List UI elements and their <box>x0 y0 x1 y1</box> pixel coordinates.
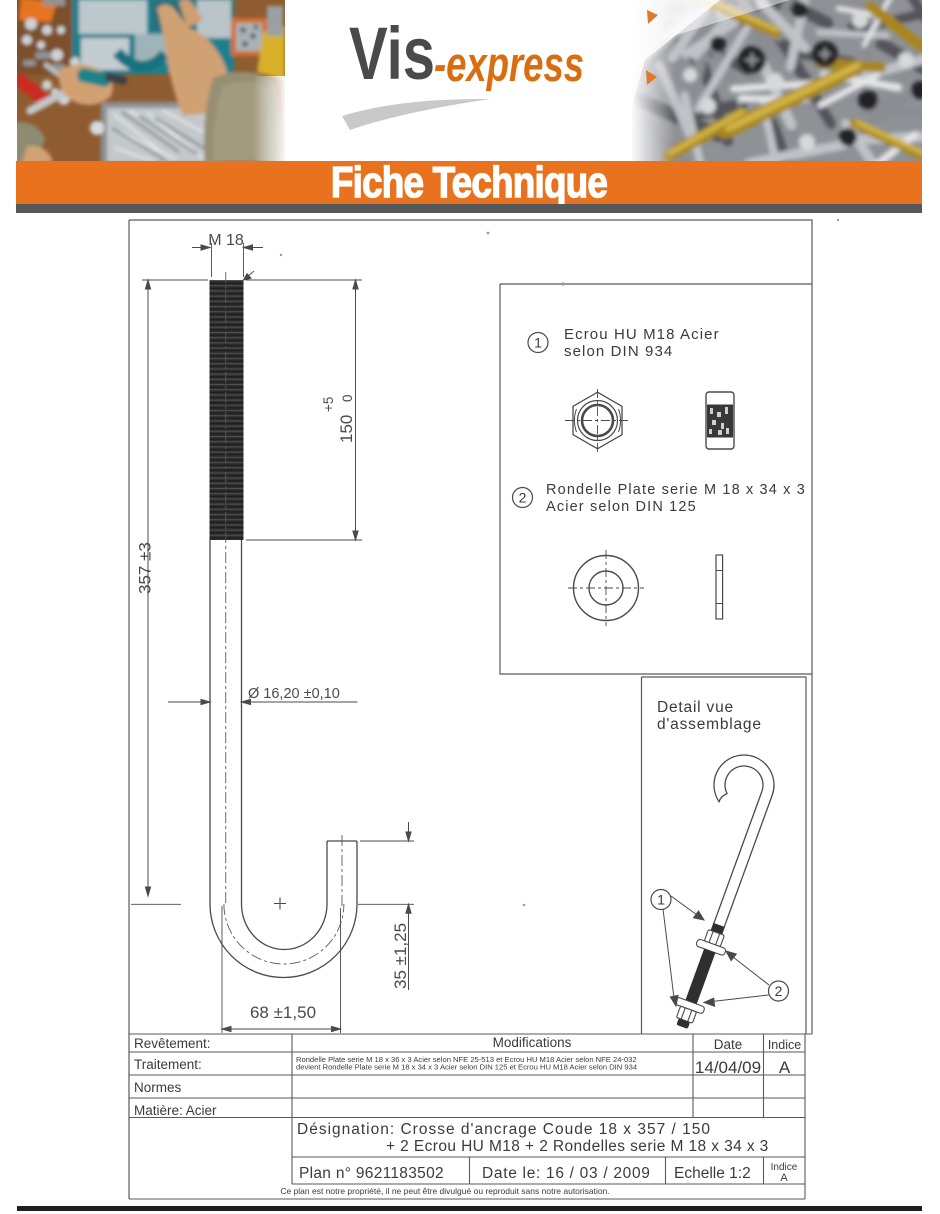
svg-text:M 18: M 18 <box>208 232 244 249</box>
svg-text:1: 1 <box>657 892 665 908</box>
svg-text:2: 2 <box>775 983 783 999</box>
svg-text:A: A <box>780 1172 788 1184</box>
svg-text:14/04/09: 14/04/09 <box>695 1058 761 1077</box>
svg-text:2: 2 <box>519 490 527 506</box>
svg-text:Désignation: Crosse d'ancrage: Désignation: Crosse d'ancrage Coude 18 x… <box>297 1121 711 1138</box>
svg-text:Rondelle Plate serie M 18 x 3: Rondelle Plate serie M 18 x 34 x 3 <box>546 482 806 498</box>
svg-text:Date: Date <box>714 1037 743 1052</box>
svg-text:Ce plan est notre propriété, i: Ce plan est notre propriété, il ne peut … <box>280 1186 609 1196</box>
svg-text:Detail vue: Detail vue <box>657 699 734 716</box>
svg-text:Echelle 1:2: Echelle 1:2 <box>674 1165 751 1182</box>
svg-text:Matière: Acier: Matière: Acier <box>134 1103 217 1118</box>
svg-text:Normes: Normes <box>134 1080 182 1095</box>
svg-text:A: A <box>779 1058 791 1077</box>
svg-text:35 ±1,25: 35 ±1,25 <box>391 923 410 989</box>
svg-text:Date le: 16 / 03 / 2009: Date le: 16 / 03 / 2009 <box>482 1165 651 1182</box>
svg-text:1: 1 <box>534 335 542 351</box>
svg-text:68 ±1,50: 68 ±1,50 <box>250 1003 316 1022</box>
svg-text:Ecrou HU M18 Acier: Ecrou HU M18 Acier <box>564 326 720 343</box>
svg-text:Plan n° 9621183502: Plan n° 9621183502 <box>299 1165 444 1182</box>
svg-text:+5: +5 <box>321 397 336 412</box>
svg-text:357 ±3: 357 ±3 <box>136 542 155 594</box>
svg-text:+ 2 Ecrou HU M18 + 2 Rondelles: + 2 Ecrou HU M18 + 2 Rondelles serie M 1… <box>386 1138 769 1155</box>
svg-text:Indice: Indice <box>768 1038 801 1052</box>
svg-text:Ø 16,20 ±0,10: Ø 16,20 ±0,10 <box>248 686 340 702</box>
svg-text:Traitement:: Traitement: <box>134 1057 202 1072</box>
svg-text:Acier selon DIN 125: Acier selon DIN 125 <box>546 499 697 515</box>
svg-text:Revêtement:: Revêtement: <box>134 1036 211 1051</box>
svg-text:selon DIN 934: selon DIN 934 <box>564 343 673 360</box>
svg-text:d'assemblage: d'assemblage <box>657 716 762 733</box>
svg-text:0: 0 <box>340 394 355 402</box>
svg-text:Modifications: Modifications <box>493 1035 572 1050</box>
svg-text:150: 150 <box>337 415 356 443</box>
svg-text:devient Rondelle Plate serie: devient Rondelle Plate serie M 18 x 34 x… <box>296 1063 637 1072</box>
